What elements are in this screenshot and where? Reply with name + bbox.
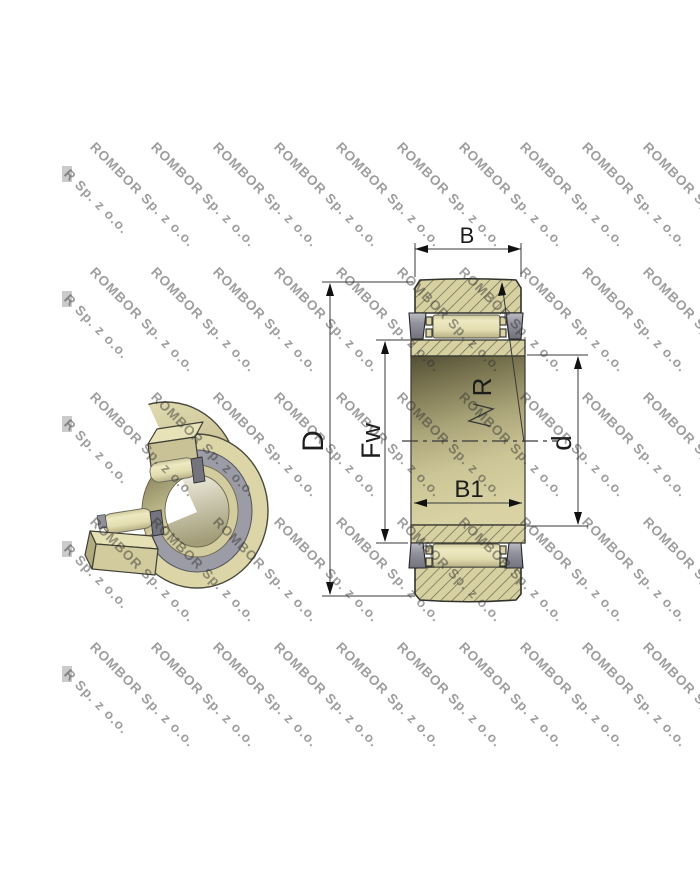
cage-segment: [426, 558, 432, 566]
dim-label-B1: B1: [454, 476, 483, 503]
page: B D Fw d: [0, 0, 700, 869]
iso-cage-segment-top: [191, 457, 205, 483]
cage-segment: [500, 329, 506, 337]
needle-roller: [433, 315, 500, 338]
dim-label-D: D: [297, 430, 330, 452]
inner-ring-section-top: [411, 340, 525, 356]
cage-segment: [426, 329, 432, 337]
cut-block-b-front-face: [92, 544, 158, 575]
iso-cut-block-top: [148, 422, 205, 483]
arrowhead: [381, 529, 389, 542]
dimension-B: B: [415, 223, 521, 277]
dim-label-B: B: [460, 223, 475, 248]
cage-segment: [500, 546, 506, 554]
dim-label-d: d: [546, 435, 577, 451]
iso-cage-segment-bottom: [150, 510, 164, 536]
arrowhead: [326, 283, 334, 296]
inner-ring-section-bottom: [411, 525, 525, 543]
iso-roller-end-cap: [97, 514, 107, 528]
technical-drawing: B D Fw d: [0, 0, 700, 869]
arrowhead: [326, 582, 334, 595]
arrowhead: [415, 245, 428, 253]
side-flange: [506, 543, 523, 568]
cage-segment: [500, 558, 506, 566]
arrowhead: [574, 512, 582, 525]
outer-ring-section-bottom: [415, 567, 521, 602]
side-flange: [409, 313, 426, 339]
arrowhead: [508, 245, 521, 253]
iso-view: [0, 328, 268, 596]
needle-roller: [433, 544, 500, 567]
arrowhead: [574, 356, 582, 369]
roller-row-top: [409, 313, 523, 339]
side-flange: [506, 313, 523, 339]
side-flange: [409, 543, 426, 568]
dim-label-Fw: Fw: [356, 423, 386, 459]
cage-segment: [426, 546, 432, 554]
section-view: B D Fw d: [297, 223, 588, 602]
cage-segment: [426, 317, 432, 325]
roller-row-bottom: [409, 543, 523, 568]
dimension-Fw: Fw: [356, 340, 410, 543]
arrowhead: [381, 341, 389, 354]
dim-label-R: R: [467, 378, 497, 397]
cage-segment: [500, 317, 506, 325]
